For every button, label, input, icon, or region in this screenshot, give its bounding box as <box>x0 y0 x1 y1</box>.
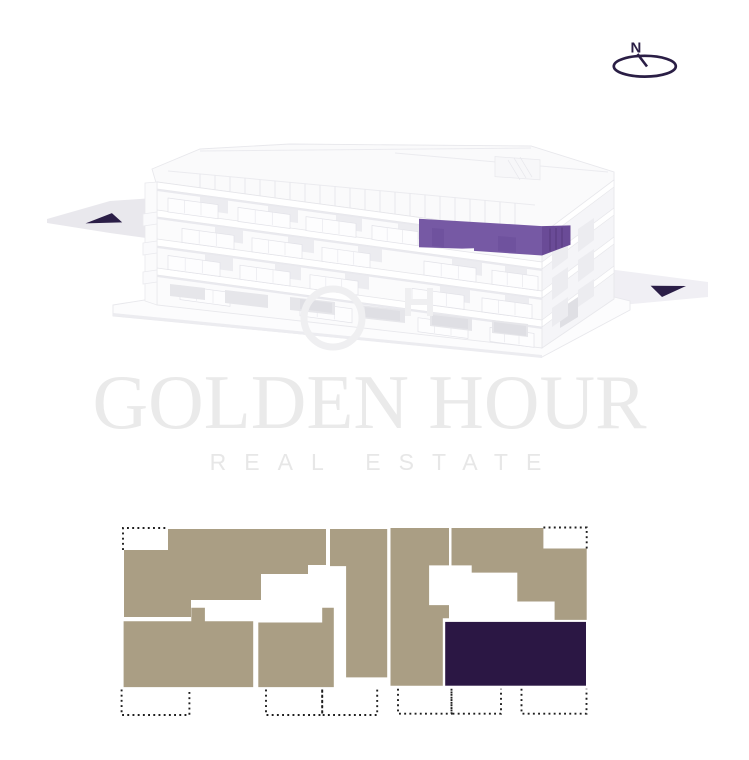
svg-text:REAL ESTATE: REAL ESTATE <box>210 449 560 475</box>
svg-text:N: N <box>631 40 642 57</box>
svg-text:GOLDEN HOUR: GOLDEN HOUR <box>93 359 648 445</box>
